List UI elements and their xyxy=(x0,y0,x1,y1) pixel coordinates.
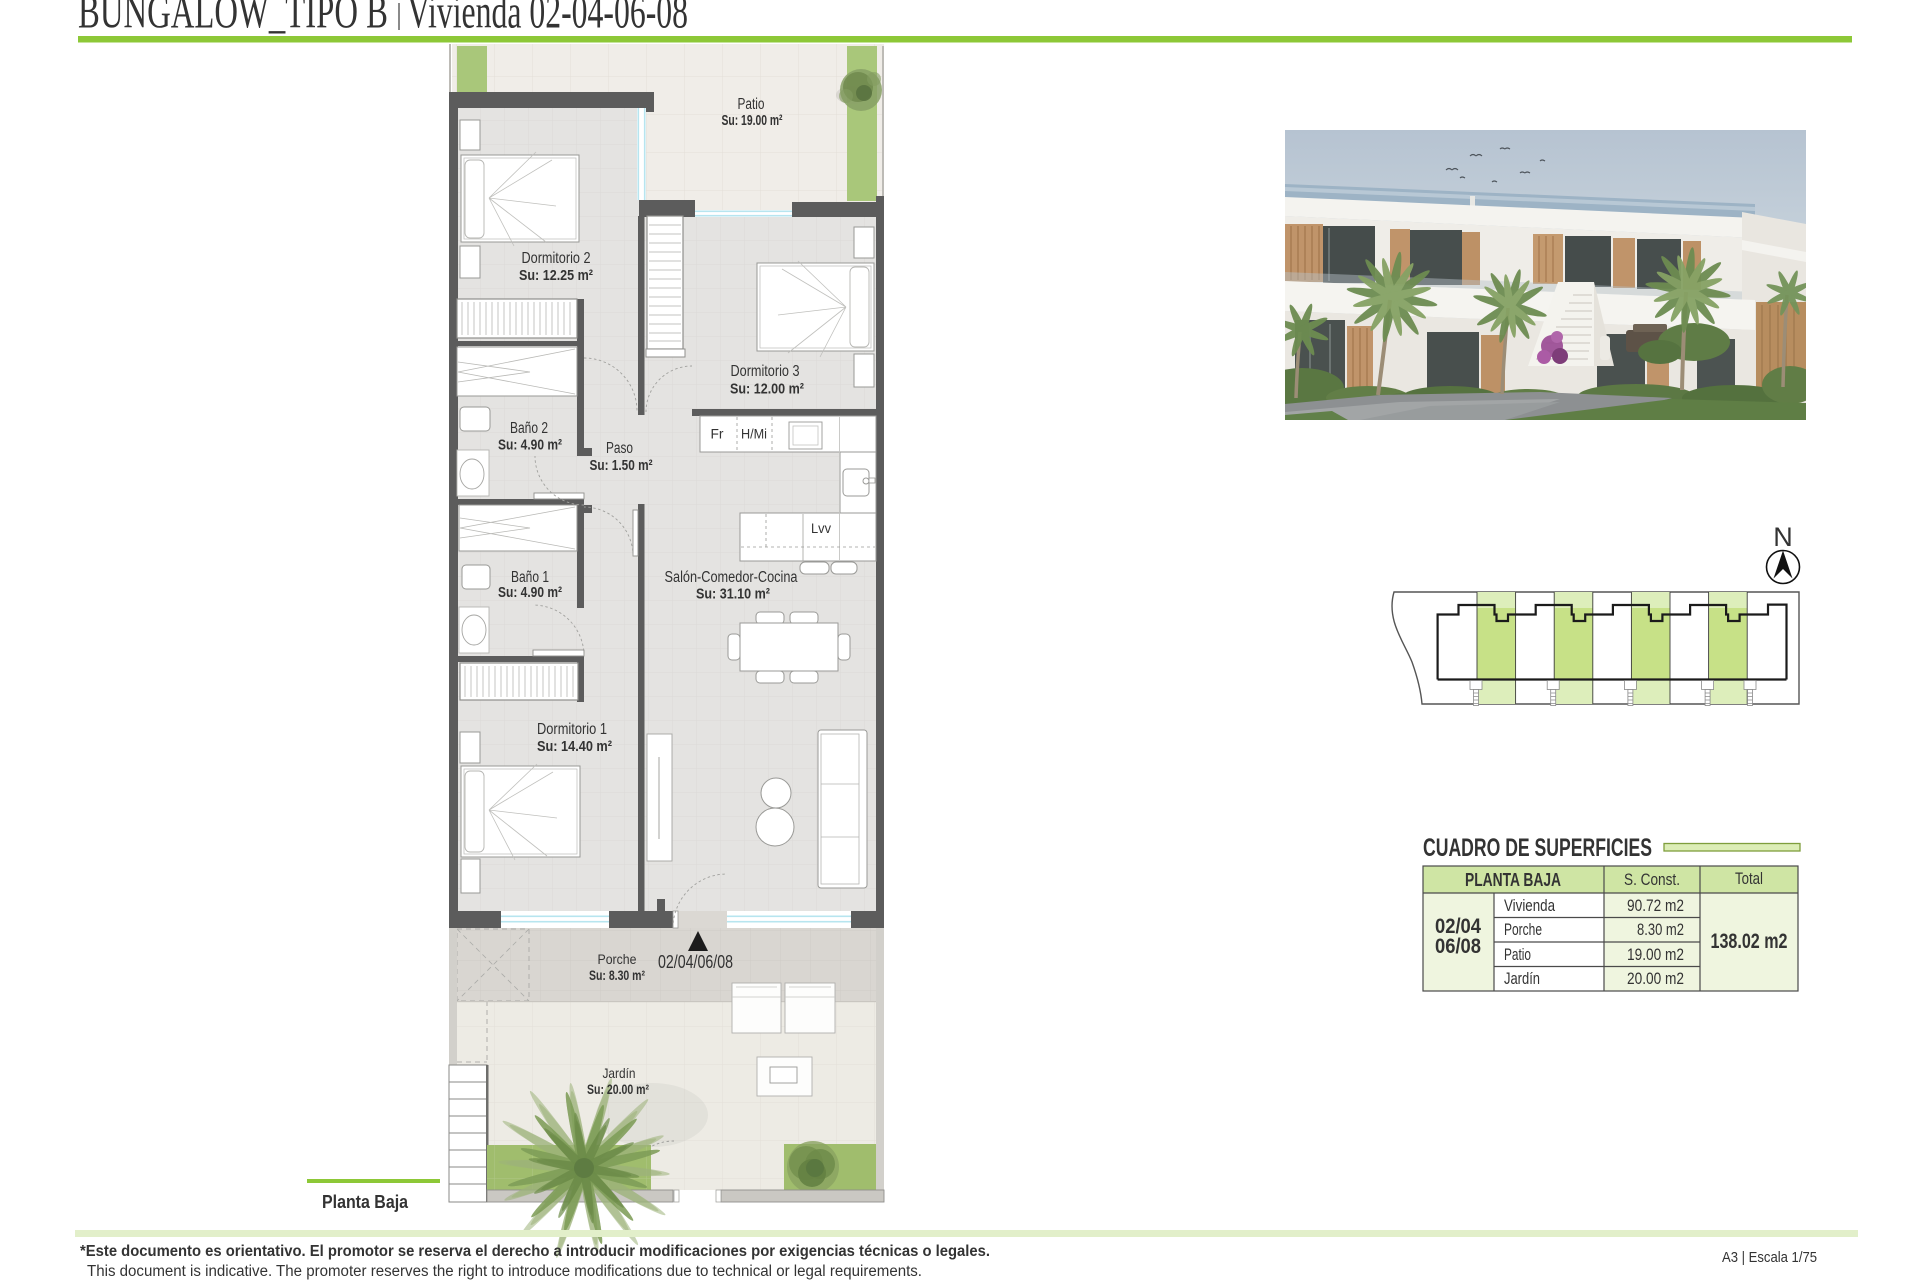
svg-text:90.72 m2: 90.72 m2 xyxy=(1627,896,1684,915)
svg-text:Su: 1.50 m²: Su: 1.50 m² xyxy=(590,457,653,474)
svg-text:Su: 14.40 m²: Su: 14.40 m² xyxy=(537,738,612,755)
svg-text:Porche: Porche xyxy=(1504,920,1542,939)
svg-text:Vivienda: Vivienda xyxy=(1504,896,1555,915)
svg-text:S. Const.: S. Const. xyxy=(1624,870,1680,889)
svg-text:Dormitorio 1: Dormitorio 1 xyxy=(537,721,607,738)
svg-text:02/04/06/08: 02/04/06/08 xyxy=(658,952,733,972)
svg-text:CUADRO DE SUPERFICIES: CUADRO DE SUPERFICIES xyxy=(1423,834,1652,862)
svg-text:Su: 19.00 m²: Su: 19.00 m² xyxy=(722,112,783,129)
svg-text:Vivienda 02-04-06-08: Vivienda 02-04-06-08 xyxy=(407,0,688,39)
svg-text:Fr: Fr xyxy=(711,427,725,442)
svg-text:Patio: Patio xyxy=(738,96,765,113)
svg-text:Dormitorio 2: Dormitorio 2 xyxy=(522,250,591,267)
svg-text:This document is indicative. T: This document is indicative. The promote… xyxy=(87,1263,922,1280)
svg-text:BUNGALOW_TIPO B: BUNGALOW_TIPO B xyxy=(78,0,388,39)
svg-text:PLANTA BAJA: PLANTA BAJA xyxy=(1465,870,1561,890)
svg-text:Su: 12.00 m²: Su: 12.00 m² xyxy=(730,381,804,398)
svg-text:N: N xyxy=(1773,522,1793,552)
svg-text:H/Mi: H/Mi xyxy=(741,427,767,442)
svg-text:Dormitorio 3: Dormitorio 3 xyxy=(731,363,800,380)
svg-text:Baño 2: Baño 2 xyxy=(510,420,548,437)
svg-text:Jardín: Jardín xyxy=(603,1065,636,1081)
svg-text:Su: 12.25 m²: Su: 12.25 m² xyxy=(519,267,593,284)
svg-text:Patio: Patio xyxy=(1504,945,1531,964)
svg-text:8.30 m2: 8.30 m2 xyxy=(1637,920,1684,939)
svg-text:19.00 m2: 19.00 m2 xyxy=(1627,945,1684,964)
svg-text:138.02 m2: 138.02 m2 xyxy=(1711,930,1788,953)
svg-text:Porche: Porche xyxy=(598,951,637,967)
svg-text:Su: 8.30 m²: Su: 8.30 m² xyxy=(589,968,645,983)
svg-text:Su: 31.10 m²: Su: 31.10 m² xyxy=(696,586,770,603)
svg-text:Lvv: Lvv xyxy=(811,521,831,536)
svg-text:Jardín: Jardín xyxy=(1504,969,1540,988)
svg-text:20.00 m2: 20.00 m2 xyxy=(1627,969,1684,988)
svg-text:A3 | Escala 1/75: A3 | Escala 1/75 xyxy=(1722,1249,1817,1266)
svg-text:Su: 4.90 m²: Su: 4.90 m² xyxy=(498,584,562,601)
svg-text:Total: Total xyxy=(1735,869,1763,888)
svg-text:Su: 4.90 m²: Su: 4.90 m² xyxy=(498,437,562,454)
svg-text:06/08: 06/08 xyxy=(1435,935,1481,958)
svg-text:Paso: Paso xyxy=(606,440,633,457)
svg-text:Planta Baja: Planta Baja xyxy=(322,1192,409,1212)
svg-text:Su: 20.00 m²: Su: 20.00 m² xyxy=(587,1082,649,1097)
svg-text:Salón-Comedor-Cocina: Salón-Comedor-Cocina xyxy=(665,569,798,586)
svg-text:*Este documento es orientativo: *Este documento es orientativo. El promo… xyxy=(80,1243,990,1260)
